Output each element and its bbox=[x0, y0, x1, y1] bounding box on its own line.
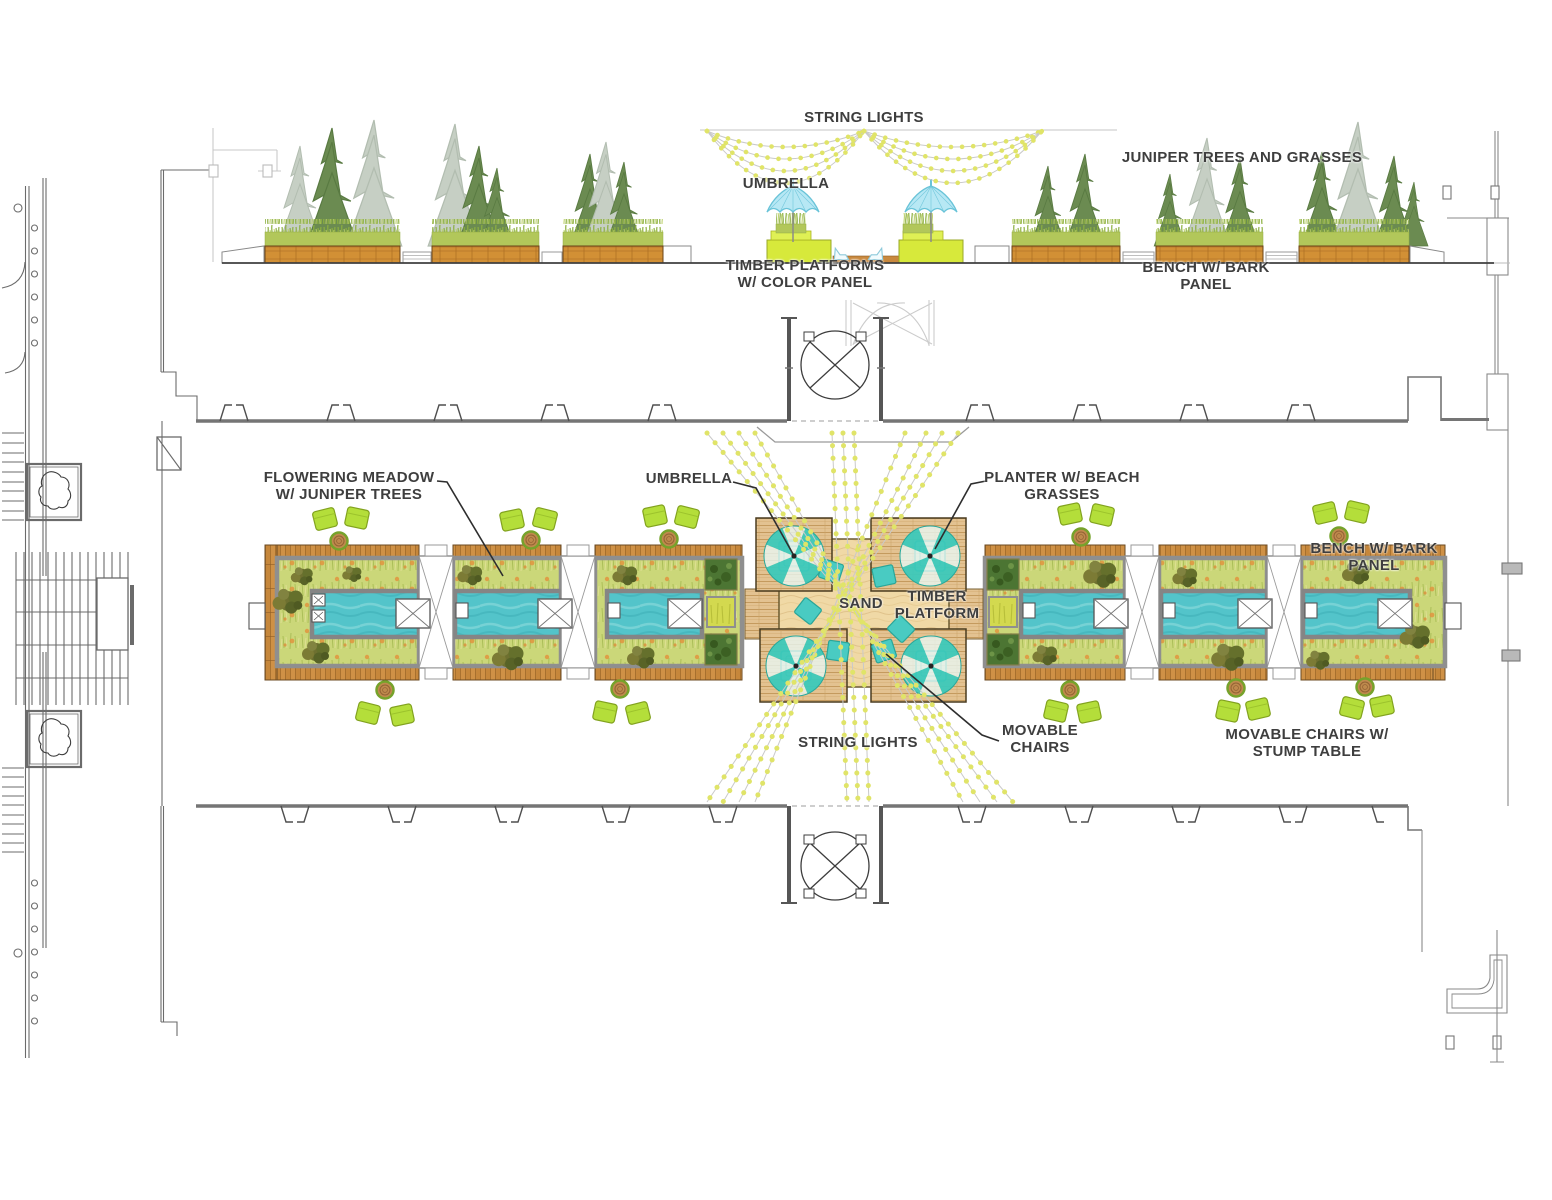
label-movable-chairs: MOVABLE CHAIRS bbox=[1002, 723, 1078, 757]
landscape-site-plan: STRING LIGHTS JUNIPER TREES AND GRASSES … bbox=[0, 0, 1552, 1200]
courtyard-south-wall bbox=[196, 806, 1408, 822]
label-bench-bark-plan: BENCH W/ BARK PANEL bbox=[1285, 541, 1463, 575]
label-sand: SAND bbox=[839, 596, 883, 613]
label-planter-beach: PLANTER W/ BEACH GRASSES bbox=[984, 470, 1140, 504]
west-building-linework bbox=[2, 170, 213, 1058]
label-juniper-trees: JUNIPER TREES AND GRASSES bbox=[1122, 150, 1362, 167]
label-timber-platforms: TIMBER PLATFORMS W/ COLOR PANEL bbox=[726, 258, 885, 292]
planter-band-west bbox=[249, 545, 742, 680]
courtyard-north-wall bbox=[196, 405, 1408, 442]
label-string-lights-top: STRING LIGHTS bbox=[804, 110, 924, 127]
label-umbrella-elevation: UMBRELLA bbox=[743, 176, 830, 193]
label-movable-chairs-stump: MOVABLE CHAIRS W/ STUMP TABLE bbox=[1225, 727, 1388, 761]
water-channels bbox=[312, 591, 702, 637]
north-entry-vestibule bbox=[781, 300, 934, 421]
label-flowering-meadow: FLOWERING MEADOW W/ JUNIPER TREES bbox=[264, 470, 435, 504]
label-string-lights-bottom: STRING LIGHTS bbox=[798, 735, 918, 752]
label-umbrella-plan: UMBRELLA bbox=[646, 471, 733, 488]
elevation-grasses bbox=[265, 219, 1409, 248]
label-bench-bark-elevation: BENCH W/ BARK PANEL bbox=[1142, 260, 1269, 294]
elevation-strip bbox=[222, 120, 1510, 263]
south-entry-vestibule bbox=[781, 806, 889, 903]
label-timber-platform: TIMBER PLATFORM bbox=[895, 589, 980, 623]
